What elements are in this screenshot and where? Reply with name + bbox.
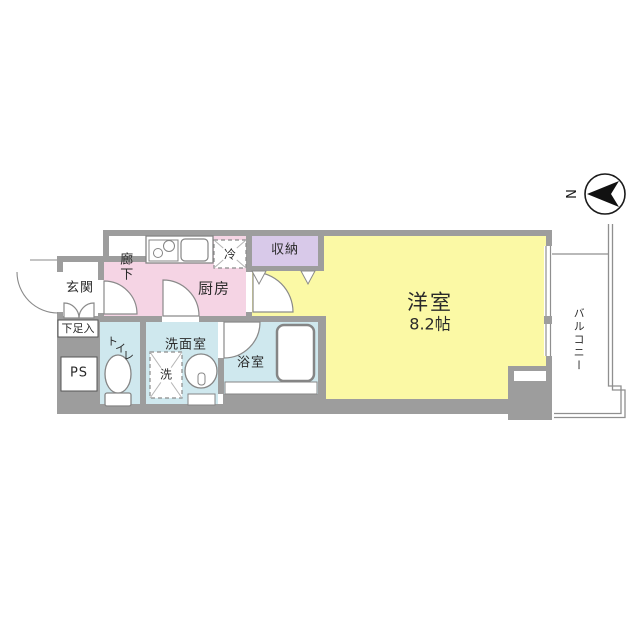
western-room-size: 8.2帖 (407, 315, 453, 333)
label-fridge: 冷 (224, 248, 236, 261)
wall-top (103, 230, 552, 236)
compass-icon: N (565, 174, 625, 214)
bath-ledge (225, 382, 317, 394)
wall-bottom-bath (223, 394, 326, 414)
vanity-base (188, 394, 215, 405)
label-genkan: 玄関 (66, 282, 94, 297)
basin-drain-icon (198, 373, 205, 385)
floor-plan-drawing: N (0, 0, 640, 640)
balcony-outline (552, 224, 625, 418)
label-pipe-space: PS (70, 367, 88, 382)
washroom-door-opening (162, 316, 199, 322)
label-closet: 収納 (271, 244, 299, 259)
wall-kitchen-left (103, 236, 109, 256)
windows (544, 246, 552, 356)
label-bathroom: 浴室 (237, 357, 265, 372)
wall-window-mullion (544, 316, 552, 324)
room-door-opening (246, 272, 252, 312)
label-kitchen: 厨房 (198, 281, 230, 298)
wall-toilet-washroom (140, 322, 146, 404)
toilet-tank-icon (105, 393, 131, 406)
balcony-rail-inner (554, 224, 621, 414)
label-balcony: バルコニー (572, 308, 584, 373)
label-washer: 洗 (160, 368, 172, 381)
kitchen-sink-icon (181, 239, 208, 261)
bath-door-opening (218, 322, 224, 358)
hall-door-opening (98, 280, 104, 313)
label-shoe-box: 下足入 (62, 323, 95, 335)
entrance-opening (57, 272, 63, 312)
wall-closet-right (318, 236, 324, 266)
stove-burner-small (154, 249, 163, 258)
label-washroom: 洗面室 (165, 339, 207, 354)
bathtub-icon (277, 325, 314, 381)
wall-bath-right (318, 316, 326, 400)
label-hallway: 廊下 (117, 252, 132, 282)
label-western-room: 洋室 8.2帖 (407, 291, 453, 332)
entrance-door-swing (17, 272, 58, 313)
wall-closet-bottom (252, 266, 324, 271)
western-room-name: 洋室 (407, 291, 453, 315)
wall-bottom-main (320, 399, 514, 414)
compass-north-label: N (565, 189, 580, 199)
balcony-rail-outer (554, 224, 625, 418)
wall-right-stub-top (546, 236, 552, 246)
stove-burner-large (164, 241, 175, 252)
shoe-cabinet-door-right (79, 303, 94, 318)
pillar-slot (514, 371, 546, 381)
floor-plan: N 玄関 下足入 PS 廊下 厨房 冷 収納 トイレ 洗面室 洗 浴室 洋室 8… (0, 0, 640, 640)
shoe-cabinet-door-left (64, 303, 79, 318)
